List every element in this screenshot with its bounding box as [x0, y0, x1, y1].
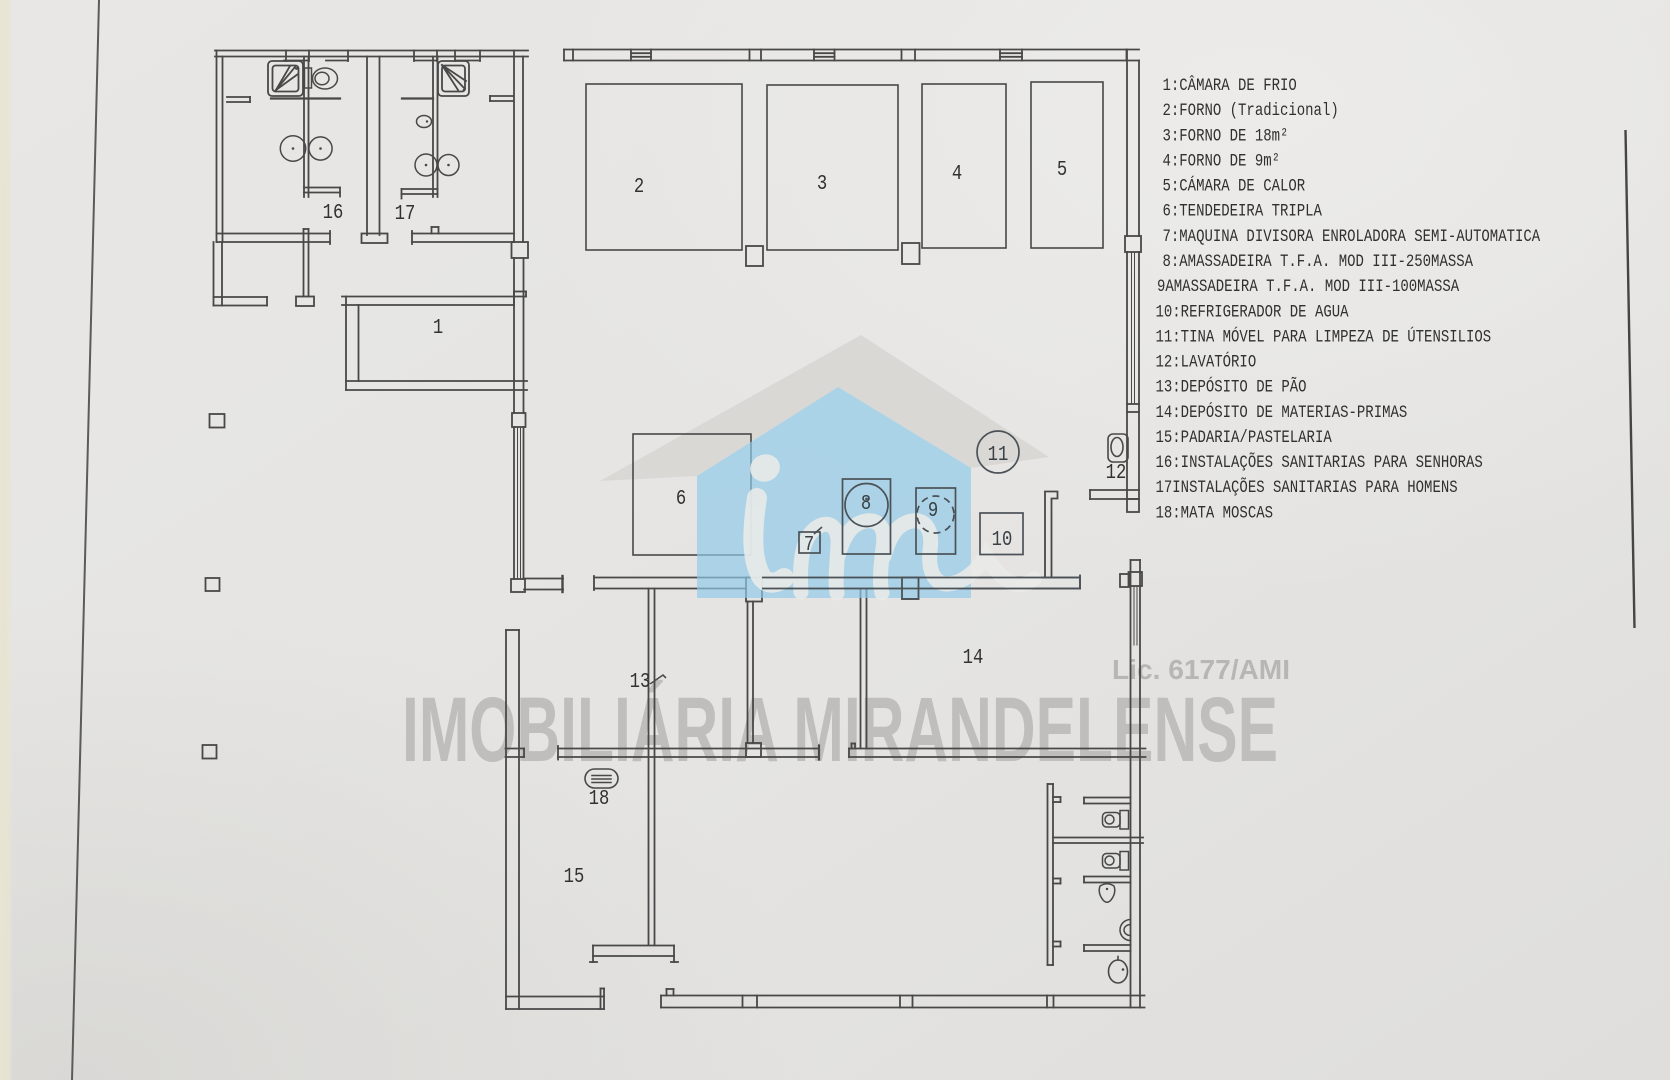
svg-text:17INSTALAÇÕES SANITARIAS PARA: 17INSTALAÇÕES SANITARIAS PARA HOMENS [1156, 477, 1458, 498]
svg-text:10: 10 [992, 528, 1013, 552]
svg-text:15: 15 [564, 865, 585, 889]
svg-text:7:MAQUINA DIVISORA ENROLADORA: 7:MAQUINA DIVISORA ENROLADORA SEMI-AUTOM… [1163, 226, 1541, 246]
svg-text:7: 7 [804, 533, 814, 557]
svg-text:9: 9 [928, 499, 938, 523]
svg-text:14:DEPÓSITO DE MATERIAS-PRIMAS: 14:DEPÓSITO DE MATERIAS-PRIMAS [1156, 401, 1408, 422]
svg-text:17: 17 [395, 202, 416, 226]
svg-text:IMOBILIÁRIA MIRANDELENSE: IMOBILIÁRIA MIRANDELENSE [402, 679, 1278, 781]
svg-text:8:AMASSADEIRA T.F.A. MOD III-2: 8:AMASSADEIRA T.F.A. MOD III-250MASSA [1163, 252, 1474, 272]
svg-text:9AMASSADEIRA T.F.A. MOD III-1: 9AMASSADEIRA T.F.A. MOD III-100MASSA [1157, 277, 1459, 297]
svg-text:18: 18 [589, 787, 610, 811]
svg-text:4:FORNO DE 9m²: 4:FORNO DE 9m² [1163, 151, 1280, 171]
svg-text:10:REFRIGERADOR DE AGUA: 10:REFRIGERADOR DE AGUA [1156, 302, 1349, 322]
svg-text:16: 16 [323, 201, 344, 225]
svg-text:6: 6 [676, 487, 686, 511]
svg-text:2: 2 [634, 175, 644, 199]
svg-text:13:DEPÓSITO DE PÃO: 13:DEPÓSITO DE PÃO [1156, 376, 1307, 397]
svg-text:12: 12 [1106, 461, 1127, 485]
svg-text:8: 8 [861, 492, 871, 516]
svg-text:14: 14 [963, 646, 984, 670]
svg-text:1:CÂMARA DE FRIO: 1:CÂMARA DE FRIO [1163, 74, 1297, 95]
svg-text:4: 4 [952, 162, 962, 186]
svg-text:11: 11 [988, 443, 1009, 467]
svg-text:3:FORNO DE 18m²: 3:FORNO DE 18m² [1163, 126, 1289, 146]
svg-text:3: 3 [817, 172, 827, 196]
svg-text:16:INSTALAÇÕES SANITARIAS PARA: 16:INSTALAÇÕES SANITARIAS PARA SENHORAS [1156, 451, 1483, 472]
svg-text:15:PADARIA/PASTELARIA: 15:PADARIA/PASTELARIA [1156, 428, 1333, 448]
svg-text:11:TINA MÓVEL PARA LIMPEZA DE: 11:TINA MÓVEL PARA LIMPEZA DE ÚTENSILIOS [1156, 326, 1492, 347]
svg-text:6:TENDEDEIRA TRIPLA: 6:TENDEDEIRA TRIPLA [1163, 201, 1323, 221]
svg-text:5: 5 [1057, 158, 1067, 182]
svg-text:2:FORNO (Tradicional): 2:FORNO (Tradicional) [1163, 101, 1339, 121]
svg-text:1: 1 [433, 316, 443, 340]
svg-text:13: 13 [630, 670, 651, 694]
svg-text:Lic. 6177/AMI: Lic. 6177/AMI [1112, 654, 1290, 685]
svg-text:18:MATA MOSCAS: 18:MATA MOSCAS [1156, 503, 1273, 523]
svg-text:5:CÁMARA DE CALOR: 5:CÁMARA DE CALOR [1163, 175, 1306, 196]
svg-text:12:LAVATÓRIO: 12:LAVATÓRIO [1156, 351, 1257, 372]
